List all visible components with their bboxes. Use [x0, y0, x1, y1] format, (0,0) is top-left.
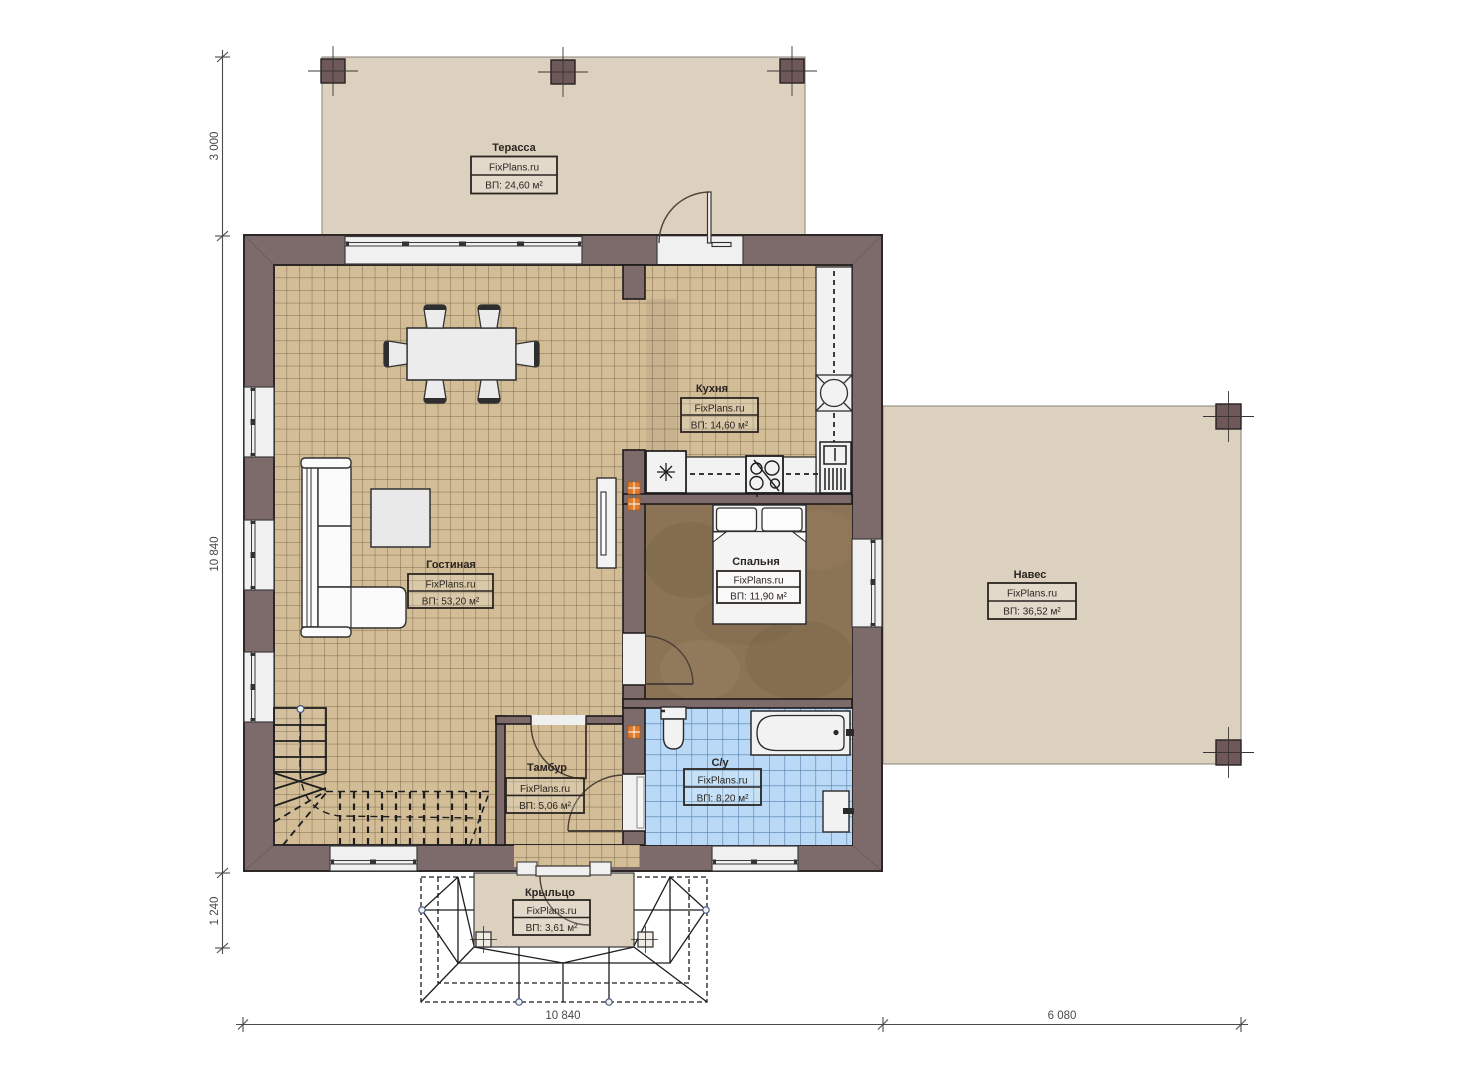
svg-text:FixPlans.ru: FixPlans.ru: [526, 906, 576, 917]
svg-text:Крыльцо: Крыльцо: [525, 887, 575, 899]
svg-text:Гостиная: Гостиная: [426, 559, 476, 571]
svg-text:FixPlans.ru: FixPlans.ru: [520, 784, 570, 795]
svg-text:FixPlans.ru: FixPlans.ru: [489, 163, 539, 174]
svg-text:3 000: 3 000: [209, 132, 221, 161]
svg-text:ВП: 5,06 м²: ВП: 5,06 м²: [519, 801, 572, 812]
svg-text:Навес: Навес: [1014, 569, 1047, 581]
svg-text:Терасса: Терасса: [492, 142, 536, 154]
svg-text:6 080: 6 080: [1048, 1010, 1077, 1022]
svg-text:FixPlans.ru: FixPlans.ru: [1007, 589, 1057, 600]
svg-text:ВП: 36,52 м²: ВП: 36,52 м²: [1003, 607, 1061, 618]
svg-text:FixPlans.ru: FixPlans.ru: [694, 404, 744, 415]
svg-text:ВП: 14,60 м²: ВП: 14,60 м²: [691, 421, 749, 432]
svg-text:ВП: 8,20 м²: ВП: 8,20 м²: [697, 794, 750, 805]
svg-text:10 840: 10 840: [545, 1010, 580, 1022]
svg-text:FixPlans.ru: FixPlans.ru: [697, 776, 747, 787]
svg-text:Спальня: Спальня: [732, 556, 780, 568]
svg-text:ВП: 11,90 м²: ВП: 11,90 м²: [730, 592, 787, 603]
svg-text:FixPlans.ru: FixPlans.ru: [733, 576, 783, 587]
svg-text:ВП: 3,61 м²: ВП: 3,61 м²: [526, 923, 579, 934]
svg-text:FixPlans.ru: FixPlans.ru: [425, 580, 475, 591]
svg-text:Кухня: Кухня: [696, 383, 728, 395]
svg-text:Тамбур: Тамбур: [527, 762, 567, 774]
svg-text:ВП: 24,60 м²: ВП: 24,60 м²: [485, 181, 543, 192]
svg-text:ВП: 53,20 м²: ВП: 53,20 м²: [422, 597, 480, 608]
svg-text:1 240: 1 240: [209, 897, 221, 926]
svg-text:С/у: С/у: [711, 757, 729, 769]
svg-text:10 840: 10 840: [209, 536, 221, 571]
